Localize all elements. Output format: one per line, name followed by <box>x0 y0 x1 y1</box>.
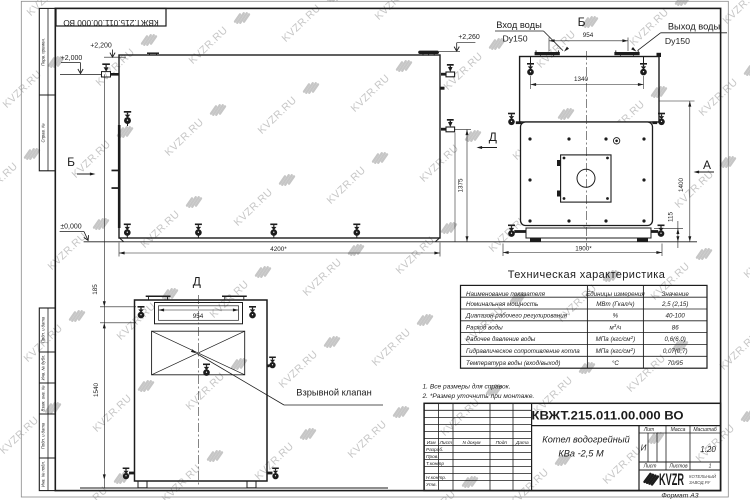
svg-text:Изм: Изм <box>427 440 437 446</box>
svg-text:954: 954 <box>583 32 594 39</box>
svg-text:Номинальная мощность: Номинальная мощность <box>466 301 538 308</box>
svg-text:КВЖТ.215.011.00.000 ВО: КВЖТ.215.011.00.000 ВО <box>532 408 684 422</box>
svg-text:Котел водогрейный: Котел водогрейный <box>542 435 629 445</box>
svg-text:Лист: Лист <box>439 440 452 446</box>
svg-text:86: 86 <box>672 324 679 331</box>
svg-text:Перв. примен.: Перв. примен. <box>41 38 46 66</box>
svg-text:Подп. и дата: Подп. и дата <box>41 316 46 343</box>
svg-text:°С: °С <box>612 360 619 367</box>
svg-text:Лит: Лит <box>643 427 654 433</box>
svg-text:1375: 1375 <box>458 178 465 193</box>
svg-text:И: И <box>641 443 647 452</box>
svg-text:Температура воды (вход/выход): Температура воды (вход/выход) <box>466 360 560 367</box>
svg-text:Формат А3: Формат А3 <box>661 493 698 500</box>
svg-text:Пров.: Пров. <box>426 454 439 460</box>
svg-text:40-100: 40-100 <box>666 313 686 320</box>
svg-text:Масса: Масса <box>671 427 686 433</box>
svg-text:Техническая характеристика: Техническая характеристика <box>508 269 666 281</box>
svg-text:Выход воды: Выход воды <box>668 21 721 31</box>
svg-text:Лист: Лист <box>643 464 657 470</box>
svg-text:Т.контр: Т.контр <box>426 461 444 467</box>
svg-text:Dy150: Dy150 <box>665 36 690 46</box>
svg-text:Листов: Листов <box>668 464 688 470</box>
svg-text:МПа (кгс/см2): МПа (кгс/см2) <box>596 335 636 343</box>
svg-text:+2,200: +2,200 <box>90 43 112 50</box>
svg-text:МВт (Гкал/ч): МВт (Гкал/ч) <box>596 301 634 308</box>
svg-text:1400: 1400 <box>678 178 685 193</box>
svg-text:1. Все размеры для справок.: 1. Все размеры для справок. <box>423 382 511 390</box>
svg-text:70/95: 70/95 <box>667 360 683 367</box>
svg-text:Б: Б <box>578 15 586 29</box>
svg-text:Наименование показателя: Наименование показателя <box>466 291 546 298</box>
svg-text:Б: Б <box>67 155 75 169</box>
svg-text:Расход воды: Расход воды <box>466 324 503 331</box>
svg-text:Подп: Подп <box>496 440 508 446</box>
svg-text:Взам. инв. №: Взам. инв. № <box>41 385 46 411</box>
svg-text:1:20: 1:20 <box>700 445 716 454</box>
svg-text:КВа -2,5 М: КВа -2,5 М <box>558 449 604 459</box>
svg-text:0,07(0,7): 0,07(0,7) <box>663 348 688 355</box>
svg-text:Дата: Дата <box>515 440 529 446</box>
svg-text:2,5 (2,15): 2,5 (2,15) <box>661 301 688 308</box>
svg-text:N докум: N докум <box>462 440 481 446</box>
svg-text:+2,000: +2,000 <box>61 55 83 62</box>
svg-text:1340: 1340 <box>574 76 589 83</box>
svg-text:115: 115 <box>668 211 675 222</box>
svg-text:%: % <box>613 313 619 320</box>
svg-text:2. *Размер уточнить при монтаж: 2. *Размер уточнить при монтаже. <box>422 393 535 400</box>
svg-text:МПа (кгс/см2): МПа (кгс/см2) <box>596 347 636 355</box>
svg-text:±0,000: ±0,000 <box>60 223 81 230</box>
svg-text:4200*: 4200* <box>270 246 287 253</box>
svg-text:Н.контр.: Н.контр. <box>426 475 446 481</box>
svg-text:Д: Д <box>193 275 201 289</box>
svg-text:Гидравлическое сопротивление к: Гидравлическое сопротивление котла <box>466 348 580 355</box>
svg-text:Вход воды: Вход воды <box>496 20 542 30</box>
svg-text:KVZR: KVZR <box>659 471 684 489</box>
svg-text:КОТЕЛЬНЫЙ: КОТЕЛЬНЫЙ <box>689 474 717 479</box>
svg-text:Диапазон рабочего регулировани: Диапазон рабочего регулирования <box>465 313 568 320</box>
svg-text:Инв. № дубл.: Инв. № дубл. <box>41 355 46 381</box>
svg-text:Масштаб: Масштаб <box>693 427 717 433</box>
svg-text:Разраб.: Разраб. <box>426 447 443 453</box>
svg-text:Утв.: Утв. <box>426 482 437 488</box>
svg-text:Д: Д <box>489 130 497 144</box>
svg-text:Dy150: Dy150 <box>502 34 527 44</box>
svg-text:Справ. №: Справ. № <box>41 123 46 142</box>
svg-text:Инв. № подл.: Инв. № подл. <box>41 461 46 487</box>
svg-text:0,6(6,0): 0,6(6,0) <box>665 336 686 343</box>
svg-text:Единицы измерения: Единицы измерения <box>586 291 645 298</box>
svg-text:А: А <box>703 158 711 172</box>
svg-text:1: 1 <box>709 464 712 470</box>
svg-text:ЗАВОД.РУ: ЗАВОД.РУ <box>689 480 711 485</box>
svg-text:+2,260: +2,260 <box>458 34 480 41</box>
svg-text:Значение: Значение <box>662 291 690 298</box>
svg-text:1540: 1540 <box>93 383 100 398</box>
svg-text:м3/ч: м3/ч <box>610 323 622 331</box>
svg-text:1900*: 1900* <box>575 246 592 253</box>
svg-text:Рабочее давление воды: Рабочее давление воды <box>466 336 536 343</box>
svg-text:Взрывной клапан: Взрывной клапан <box>296 388 371 398</box>
svg-text:Подп. и дата: Подп. и дата <box>41 422 46 449</box>
svg-text:КВЖТ.215.011.00.000 ВО: КВЖТ.215.011.00.000 ВО <box>63 18 159 28</box>
svg-text:185: 185 <box>92 284 99 295</box>
